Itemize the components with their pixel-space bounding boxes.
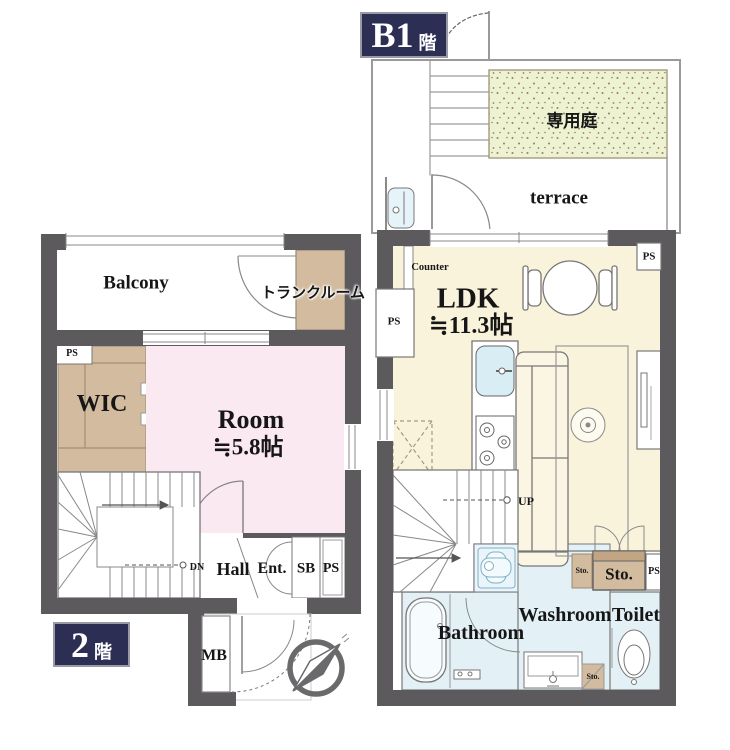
mb-label: MB <box>201 648 227 664</box>
room-area-label: ≒5.8帖 <box>212 436 283 459</box>
ps-lower-label: PS <box>648 567 660 577</box>
b1-floor-suffix: 階 <box>419 16 437 55</box>
ldk-area-label: ≒11.3帖 <box>429 314 514 338</box>
counter-label: Counter <box>411 263 448 274</box>
sb-label: SB <box>297 562 315 577</box>
entry-door-swing-dashed <box>446 13 488 38</box>
ps-top-label-2f: PS <box>66 349 78 359</box>
side-table-icon <box>571 408 605 442</box>
b1-floor-number: B1 <box>371 14 413 56</box>
ps-entrance-label: PS <box>323 562 339 576</box>
f2-floor-badge: 2 階 <box>53 622 130 667</box>
wic-label: WIC <box>77 392 128 416</box>
f2-floor-number: 2 <box>71 624 89 666</box>
balcony-window <box>143 331 269 345</box>
sto-bottom-label: Sto. <box>586 673 599 681</box>
room-name-label: Room <box>218 407 284 433</box>
tv-board-icon <box>637 351 661 449</box>
balcony-railing <box>66 231 284 251</box>
up-label: UP <box>518 495 534 507</box>
bathroom-label: Bathroom <box>438 623 524 643</box>
balcony-label: Balcony <box>103 274 168 293</box>
ps-left-label: PS <box>388 317 401 328</box>
sto-large-label: Sto. <box>605 566 633 583</box>
garden-label: 専用庭 <box>547 113 598 130</box>
floorplan-canvas: B1 階 2 階 専用庭 terrace Counter PS LDK ≒11.… <box>0 0 730 750</box>
terrace-window <box>430 229 608 247</box>
f2-rooms <box>56 250 345 598</box>
b1-floor-badge: B1 階 <box>360 12 448 58</box>
dn-label: DN <box>190 563 204 573</box>
terrace-label: terrace <box>530 189 588 208</box>
f2-floor-suffix: 階 <box>94 625 112 664</box>
ldk-left-window <box>375 389 394 441</box>
trunk-room-label: トランクルーム <box>261 287 365 302</box>
ent-label: Ent. <box>258 561 287 577</box>
ldk-name-label: LDK <box>437 285 500 314</box>
f2-stairs <box>58 472 200 598</box>
washroom-label: Washroom <box>519 605 612 625</box>
stove-icon <box>476 416 514 472</box>
sofa-icon <box>516 352 568 566</box>
utility-sink-icon <box>388 188 414 228</box>
hall-label: Hall <box>216 560 249 578</box>
toilet-label: Toilet <box>612 605 660 625</box>
bedroom-window <box>344 424 362 470</box>
ps-top-right-label: PS <box>643 252 656 263</box>
washer-pan-icon <box>474 544 518 592</box>
sto-small-label: Sto. <box>575 567 588 575</box>
vanity-sink-icon <box>524 652 582 688</box>
kitchen-counter-icon <box>472 341 518 472</box>
